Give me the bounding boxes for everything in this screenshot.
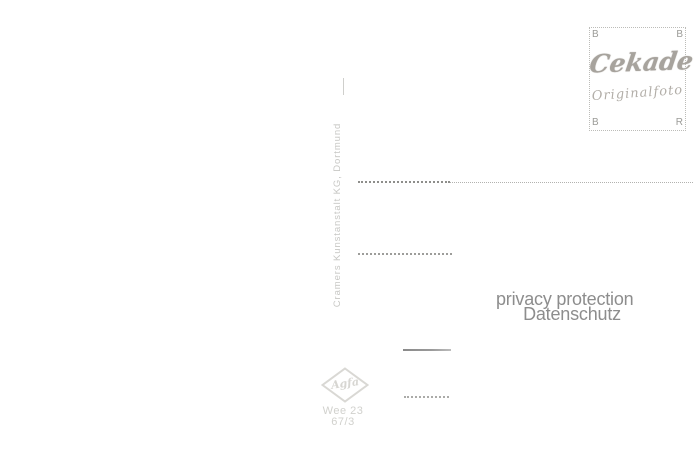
- stamp-corner-letter-top-right: B: [676, 30, 683, 40]
- address-line-2: [358, 253, 452, 255]
- print-code-line2: 67/3: [318, 417, 368, 428]
- cekade-brand-logo: Cekade: [588, 46, 688, 78]
- originalfoto-label: Originalfoto: [590, 83, 686, 105]
- publisher-imprint: Cramers Kunstanstalt KG, Dortmund: [332, 100, 346, 330]
- agfa-logo: Agfa: [321, 367, 369, 403]
- print-code: Wee 23 67/3: [318, 406, 368, 428]
- imprint-divider-dash: [343, 78, 344, 95]
- address-line-1-right: [450, 182, 693, 183]
- stamp-corner-letter-bottom-right: R: [676, 118, 683, 128]
- message-line-dotted: [404, 396, 449, 398]
- stamp-corner-letter-top-left: B: [592, 30, 599, 40]
- postcard-back: Cramers Kunstanstalt KG, Dortmund B B B …: [0, 0, 699, 452]
- stamp-corner-letter-bottom-left: B: [592, 118, 599, 128]
- address-line-1-left: [358, 181, 450, 183]
- stamp-box: B B B R Cekade Originalfoto: [589, 27, 686, 131]
- privacy-watermark: privacy protection Datenschutz: [496, 292, 648, 321]
- message-line-solid: [403, 349, 451, 351]
